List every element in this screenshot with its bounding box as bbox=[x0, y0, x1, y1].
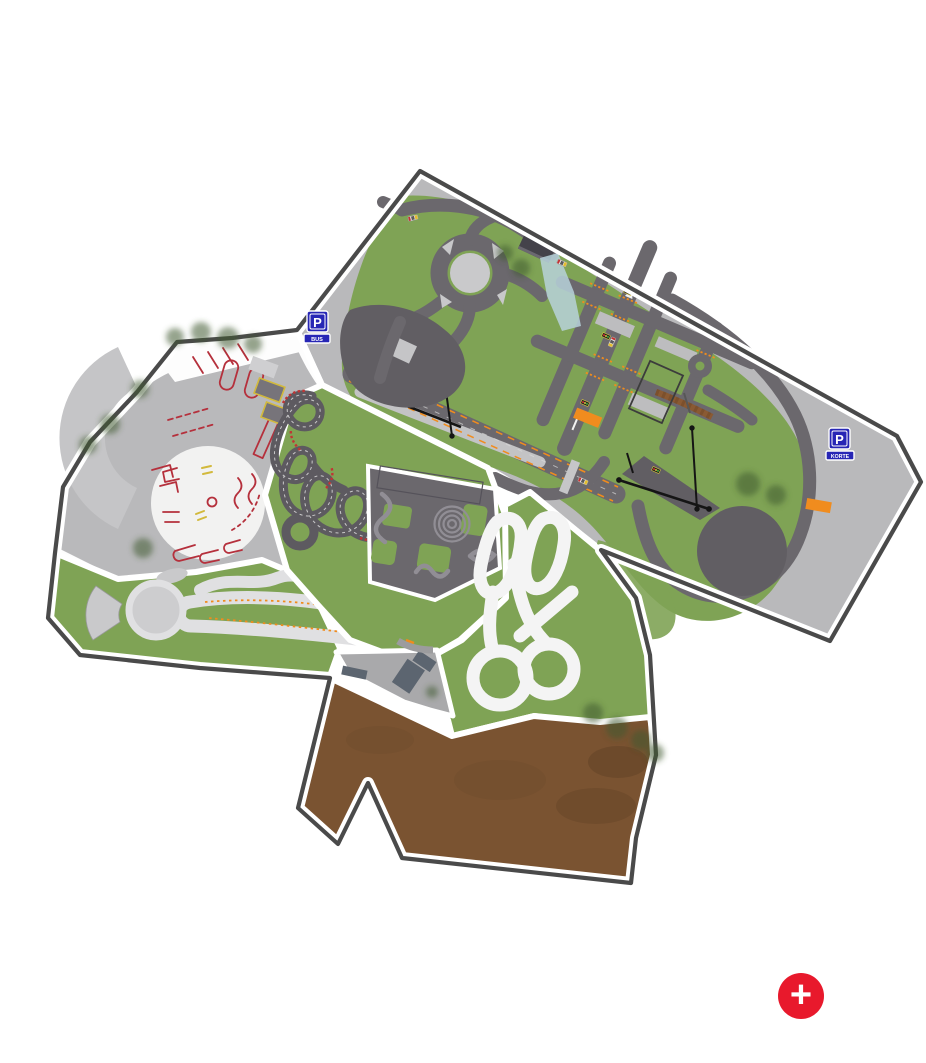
parking-sign-bus-letter: P bbox=[313, 315, 322, 330]
plus-icon: + bbox=[790, 976, 812, 1014]
parking-sign-bus-caption: BUS bbox=[311, 337, 323, 343]
zoom-in-button[interactable]: + bbox=[778, 973, 824, 1019]
facility-site-map[interactable]: BUS P KORTE P bbox=[0, 0, 926, 1063]
parking-sign-korte-caption: KORTE bbox=[831, 454, 850, 460]
skid-circle bbox=[129, 583, 183, 637]
parking-sign-korte: KORTE P bbox=[826, 428, 854, 460]
parking-sign-bus: BUS P bbox=[304, 311, 330, 343]
map-page: BUS P KORTE P + bbox=[0, 0, 926, 1063]
parking-sign-korte-letter: P bbox=[835, 432, 844, 447]
